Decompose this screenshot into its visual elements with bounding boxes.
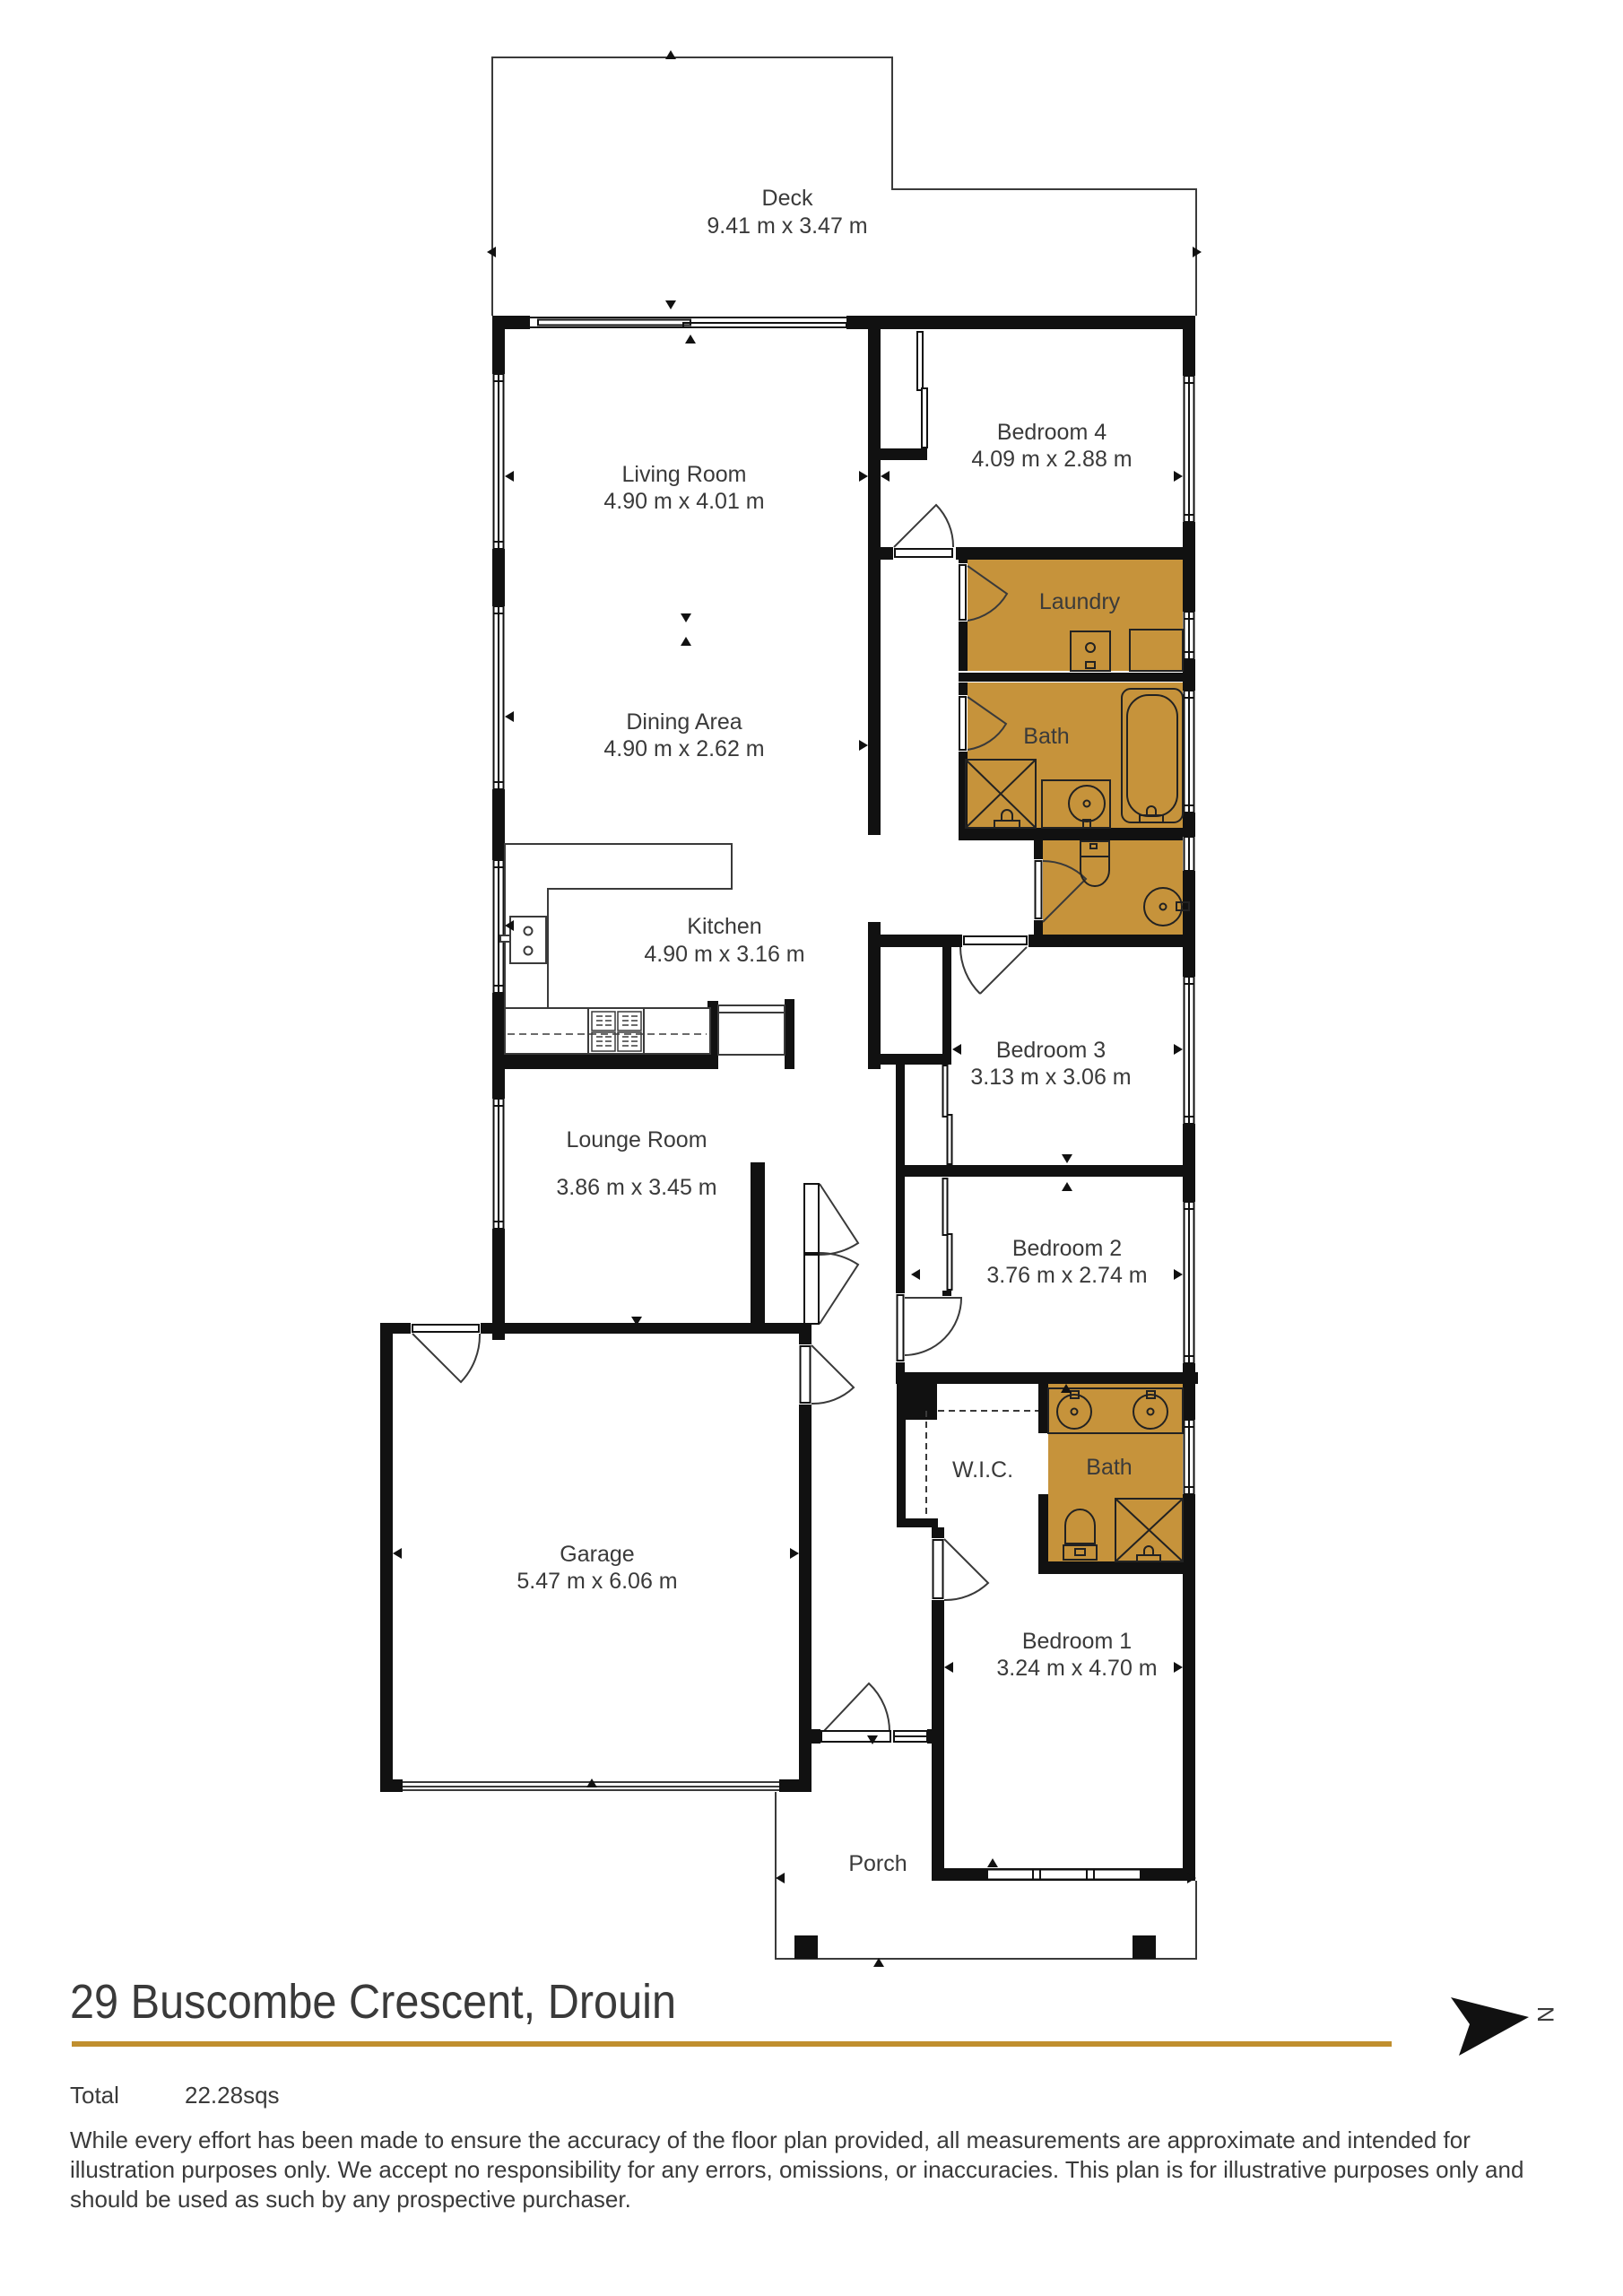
svg-text:should be used as such by any: should be used as such by any prospectiv… — [70, 2186, 631, 2213]
svg-text:illustration purposes only. We: illustration purposes only. We accept no… — [70, 2156, 1523, 2183]
svg-text:While every effort has been ma: While every effort has been made to ensu… — [70, 2126, 1471, 2153]
svg-text:Dining Area: Dining Area — [626, 709, 742, 735]
svg-text:Bedroom 1: Bedroom 1 — [1022, 1629, 1132, 1654]
svg-text:Kitchen: Kitchen — [687, 914, 761, 939]
svg-text:Bedroom 3: Bedroom 3 — [996, 1038, 1106, 1063]
svg-text:Deck: Deck — [762, 186, 813, 211]
svg-text:4.90 m x 4.01 m: 4.90 m x 4.01 m — [603, 489, 764, 514]
svg-text:Bedroom 2: Bedroom 2 — [1012, 1236, 1122, 1261]
svg-text:29 Buscombe Crescent, Drouin: 29 Buscombe Crescent, Drouin — [70, 1975, 676, 2029]
svg-text:Bath: Bath — [1023, 724, 1069, 749]
svg-text:N: N — [1532, 2006, 1558, 2022]
svg-text:3.86 m x 3.45 m: 3.86 m x 3.45 m — [556, 1175, 716, 1200]
svg-text:Lounge Room: Lounge Room — [566, 1127, 707, 1152]
svg-text:W.I.C.: W.I.C. — [952, 1457, 1013, 1483]
svg-text:Porch: Porch — [848, 1851, 907, 1876]
svg-text:4.90 m x 2.62 m: 4.90 m x 2.62 m — [603, 736, 764, 761]
svg-text:Laundry: Laundry — [1039, 589, 1121, 614]
svg-text:Bath: Bath — [1086, 1455, 1132, 1480]
svg-text:4.09 m x 2.88 m: 4.09 m x 2.88 m — [971, 447, 1132, 472]
svg-text:3.76 m x 2.74 m: 3.76 m x 2.74 m — [986, 1263, 1147, 1288]
svg-text:Total: Total — [70, 2082, 119, 2109]
svg-text:4.90 m x 3.16 m: 4.90 m x 3.16 m — [644, 942, 804, 967]
svg-text:Living Room: Living Room — [622, 462, 747, 487]
svg-text:Garage: Garage — [560, 1542, 634, 1567]
svg-text:22.28sqs: 22.28sqs — [185, 2082, 280, 2109]
svg-text:3.13 m x 3.06 m: 3.13 m x 3.06 m — [970, 1065, 1131, 1090]
svg-text:5.47 m x 6.06 m: 5.47 m x 6.06 m — [516, 1569, 677, 1594]
svg-text:Bedroom 4: Bedroom 4 — [997, 420, 1107, 445]
svg-text:9.41 m x 3.47 m: 9.41 m x 3.47 m — [707, 213, 867, 239]
svg-text:3.24 m x 4.70 m: 3.24 m x 4.70 m — [996, 1656, 1157, 1681]
